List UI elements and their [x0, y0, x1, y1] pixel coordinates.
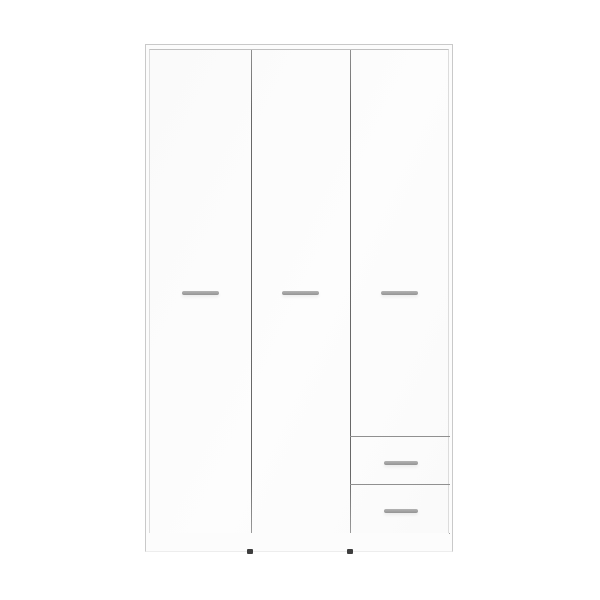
drawer-lower-handle [384, 509, 418, 513]
product-photo [0, 0, 600, 600]
drawer-middle-seam [350, 484, 450, 485]
door-right-handle [381, 291, 418, 295]
drawer-top-seam [350, 436, 450, 437]
foot-left [247, 549, 253, 554]
door-right [350, 50, 450, 436]
door-center-handle [282, 291, 319, 295]
door-left-handle [182, 291, 219, 295]
foot-right [347, 549, 353, 554]
door-seam-left [251, 50, 252, 533]
door-panels [149, 49, 449, 533]
plinth-base [149, 533, 449, 551]
wardrobe [145, 44, 453, 552]
drawer-upper-handle [384, 461, 418, 465]
